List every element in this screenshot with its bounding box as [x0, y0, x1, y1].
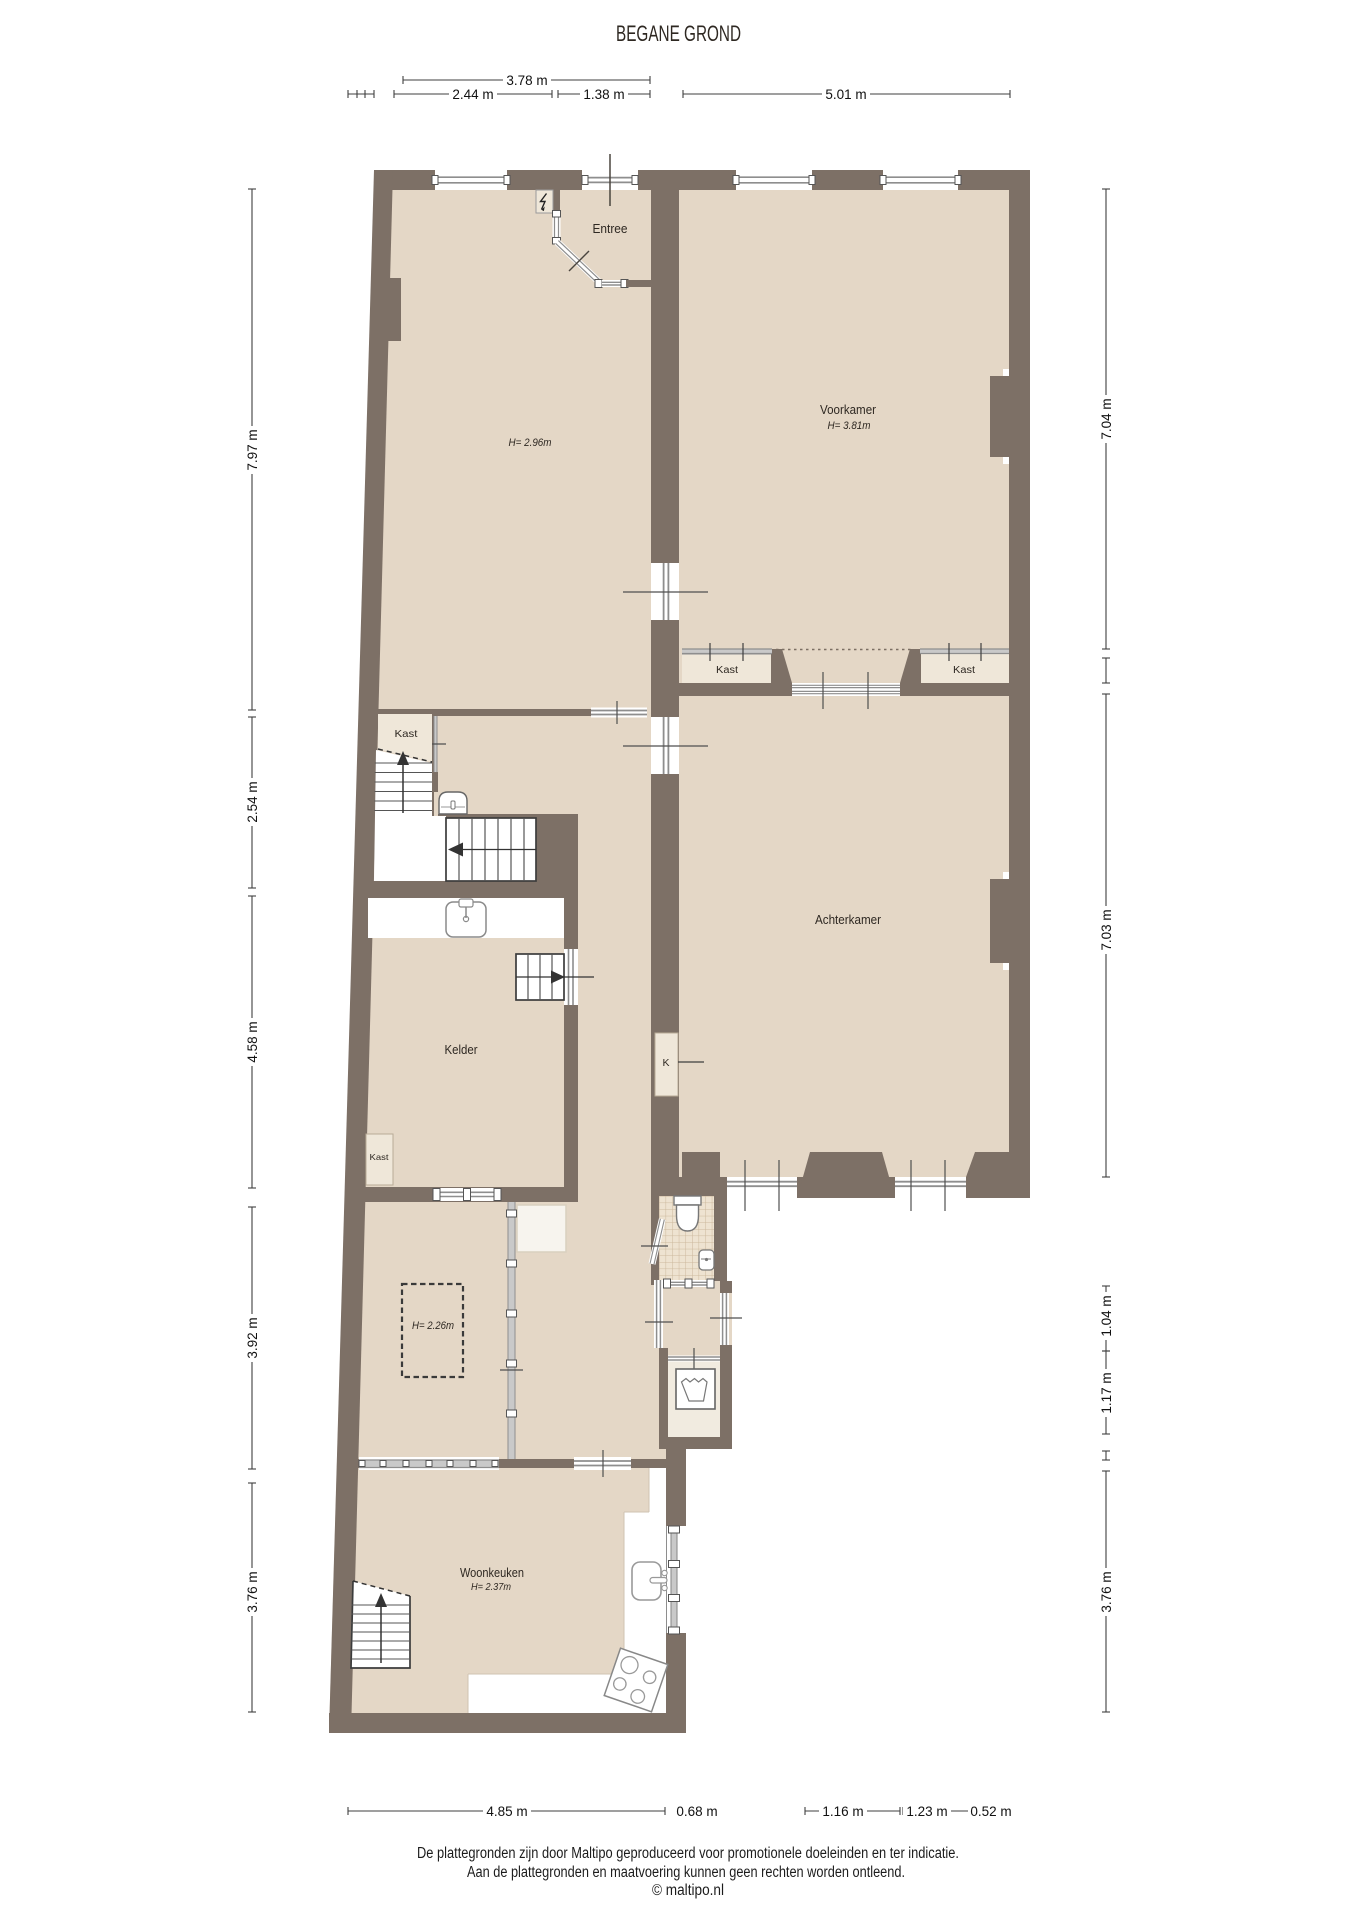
svg-text:2.44 m: 2.44 m — [452, 87, 493, 102]
svg-text:7.03 m: 7.03 m — [1099, 909, 1114, 950]
svg-text:3.78 m: 3.78 m — [506, 73, 547, 88]
svg-text:Kast: Kast — [395, 728, 418, 740]
svg-text:1.16 m: 1.16 m — [822, 1804, 863, 1819]
svg-text:0.68 m: 0.68 m — [676, 1804, 717, 1819]
svg-text:H= 3.81m: H= 3.81m — [828, 420, 871, 432]
svg-text:H= 2.96m: H= 2.96m — [509, 437, 552, 449]
svg-text:3.92 m: 3.92 m — [245, 1317, 260, 1358]
svg-text:5.01 m: 5.01 m — [825, 87, 866, 102]
svg-text:7.04 m: 7.04 m — [1099, 398, 1114, 439]
svg-text:4.58 m: 4.58 m — [245, 1021, 260, 1062]
svg-text:2.54 m: 2.54 m — [245, 781, 260, 822]
svg-text:1.23 m: 1.23 m — [906, 1804, 947, 1819]
svg-text:Woonkeuken: Woonkeuken — [460, 1566, 524, 1580]
svg-text:Entree: Entree — [593, 222, 628, 236]
svg-text:Kast: Kast — [716, 665, 738, 676]
svg-text:De plattegronden zijn door Mal: De plattegronden zijn door Maltipo gepro… — [417, 1845, 959, 1862]
svg-text:BEGANE GROND: BEGANE GROND — [616, 21, 741, 46]
svg-text:Kast: Kast — [953, 665, 975, 676]
svg-text:© maltipo.nl: © maltipo.nl — [652, 1882, 724, 1899]
svg-text:H= 2.26m: H= 2.26m — [412, 1320, 454, 1332]
svg-text:3.76 m: 3.76 m — [1099, 1571, 1114, 1612]
svg-text:Achterkamer: Achterkamer — [815, 913, 881, 927]
svg-text:Kelder: Kelder — [445, 1043, 478, 1057]
svg-text:3.76 m: 3.76 m — [245, 1571, 260, 1612]
svg-text:Kast: Kast — [370, 1152, 390, 1162]
svg-text:K: K — [662, 1057, 669, 1069]
svg-text:4.85 m: 4.85 m — [486, 1804, 527, 1819]
svg-text:Aan de plattegronden en maatvo: Aan de plattegronden en maatvoering kunn… — [467, 1864, 905, 1881]
svg-text:1.38 m: 1.38 m — [583, 87, 624, 102]
svg-text:H= 2.37m: H= 2.37m — [471, 1581, 511, 1593]
svg-text:1.17 m: 1.17 m — [1099, 1372, 1114, 1413]
svg-text:7.97 m: 7.97 m — [245, 429, 260, 470]
svg-text:Voorkamer: Voorkamer — [820, 403, 876, 417]
svg-text:1.04 m: 1.04 m — [1099, 1295, 1114, 1336]
svg-text:0.52 m: 0.52 m — [970, 1804, 1011, 1819]
